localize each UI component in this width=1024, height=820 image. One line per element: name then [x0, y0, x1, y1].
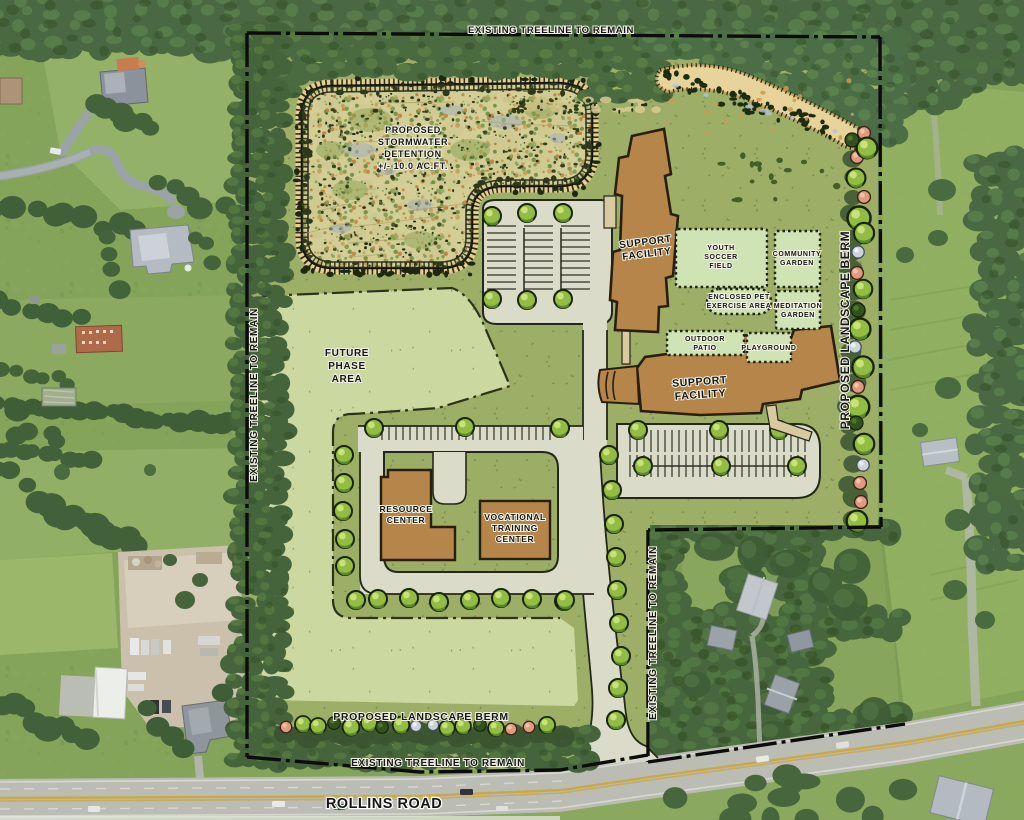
svg-text:TRAINING: TRAINING: [492, 523, 538, 533]
svg-text:EXERCISE AREA: EXERCISE AREA: [707, 303, 772, 310]
svg-text:FIELD: FIELD: [709, 263, 732, 270]
svg-text:PROPOSED LANDSCAPE BERM: PROPOSED LANDSCAPE BERM: [838, 231, 852, 430]
svg-text:CENTER: CENTER: [496, 534, 535, 544]
svg-text:GARDEN: GARDEN: [781, 312, 815, 319]
svg-text:PROPOSED: PROPOSED: [385, 125, 441, 135]
svg-text:PROPOSED LANDSCAPE BERM: PROPOSED LANDSCAPE BERM: [333, 711, 508, 723]
svg-text:ENCLOSED PET: ENCLOSED PET: [708, 294, 770, 301]
svg-text:AREA: AREA: [332, 374, 363, 385]
svg-text:+/- 10.0 AC.FT.: +/- 10.0 AC.FT.: [378, 161, 448, 171]
svg-text:COMMUNITY: COMMUNITY: [773, 251, 822, 258]
svg-text:PHASE: PHASE: [328, 361, 365, 372]
svg-text:EXISTING TREELINE TO REMAIN: EXISTING TREELINE TO REMAIN: [249, 308, 260, 482]
svg-text:EXISTING TREELINE TO REMAIN: EXISTING TREELINE TO REMAIN: [351, 758, 525, 769]
svg-text:YOUTH: YOUTH: [707, 245, 735, 252]
svg-text:ROLLINS ROAD: ROLLINS ROAD: [326, 796, 442, 812]
svg-text:OUTDOOR: OUTDOOR: [685, 336, 725, 343]
svg-text:FUTURE: FUTURE: [325, 348, 369, 359]
svg-text:RESOURCE: RESOURCE: [380, 504, 433, 514]
svg-text:VOCATIONAL: VOCATIONAL: [484, 512, 546, 522]
svg-text:STORMWATER: STORMWATER: [378, 137, 448, 147]
svg-text:MEDITATION: MEDITATION: [774, 303, 823, 310]
svg-text:CENTER: CENTER: [387, 515, 426, 525]
svg-text:PLAYGROUND: PLAYGROUND: [741, 345, 796, 352]
svg-text:GARDEN: GARDEN: [780, 260, 814, 267]
svg-text:EXISTING TREELINE TO REMAIN: EXISTING TREELINE TO REMAIN: [468, 25, 634, 36]
svg-text:PATIO: PATIO: [693, 345, 716, 352]
svg-text:SOCCER: SOCCER: [704, 254, 738, 261]
svg-text:EXISTING TREELINE TO REMAIN: EXISTING TREELINE TO REMAIN: [648, 546, 659, 720]
svg-text:DETENTION: DETENTION: [384, 149, 441, 159]
